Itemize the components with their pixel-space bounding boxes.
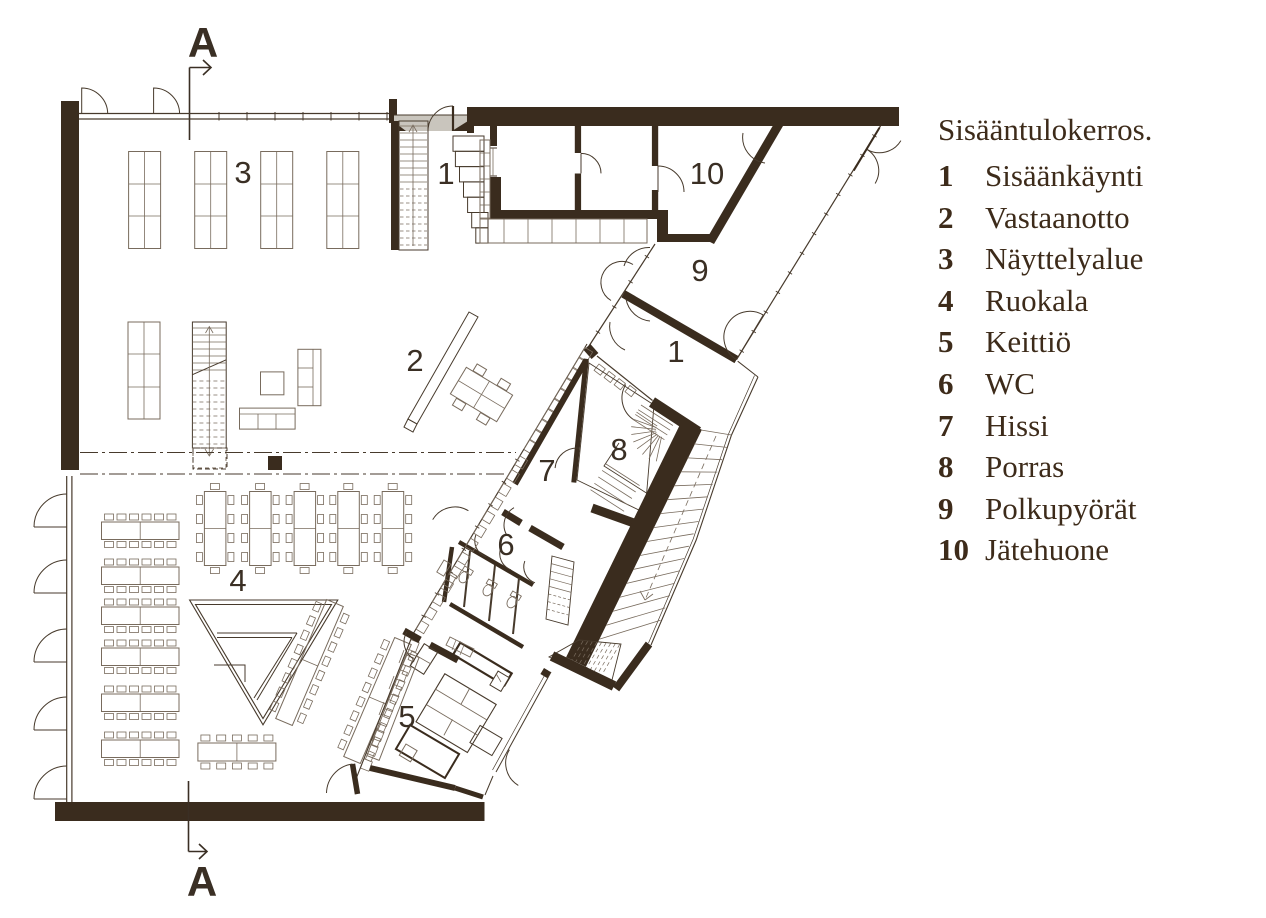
svg-text:Jätehuone: Jätehuone xyxy=(985,532,1109,567)
svg-text:Keittiö: Keittiö xyxy=(985,324,1071,359)
svg-text:4: 4 xyxy=(938,283,954,318)
svg-text:10: 10 xyxy=(938,532,969,567)
svg-text:7: 7 xyxy=(538,453,555,488)
svg-text:9: 9 xyxy=(938,491,954,526)
svg-text:Ruokala: Ruokala xyxy=(985,283,1089,318)
svg-text:3: 3 xyxy=(938,241,954,276)
svg-text:1: 1 xyxy=(437,156,454,191)
svg-text:Polkupyörät: Polkupyörät xyxy=(985,491,1137,526)
svg-text:A: A xyxy=(187,858,217,905)
svg-text:1: 1 xyxy=(667,334,684,369)
svg-text:4: 4 xyxy=(229,563,246,598)
svg-text:2: 2 xyxy=(938,200,954,235)
svg-text:5: 5 xyxy=(938,324,954,359)
svg-text:7: 7 xyxy=(938,408,954,443)
svg-text:Vastaanotto: Vastaanotto xyxy=(985,200,1130,235)
svg-text:6: 6 xyxy=(497,527,514,562)
svg-text:A: A xyxy=(188,19,218,66)
svg-text:Sisäänkäynti: Sisäänkäynti xyxy=(985,158,1144,193)
svg-text:6: 6 xyxy=(938,366,954,401)
svg-text:1: 1 xyxy=(938,158,954,193)
svg-text:WC: WC xyxy=(985,366,1035,401)
svg-text:3: 3 xyxy=(234,155,251,190)
svg-text:8: 8 xyxy=(938,449,954,484)
svg-text:10: 10 xyxy=(690,156,724,191)
svg-text:2: 2 xyxy=(406,343,423,378)
svg-text:Porras: Porras xyxy=(985,449,1064,484)
svg-text:Sisääntulokerros.: Sisääntulokerros. xyxy=(938,112,1152,147)
svg-text:9: 9 xyxy=(691,253,708,288)
svg-text:Hissi: Hissi xyxy=(985,408,1049,443)
svg-text:Näyttelyalue: Näyttelyalue xyxy=(985,241,1143,276)
svg-text:8: 8 xyxy=(610,432,627,467)
svg-text:5: 5 xyxy=(398,699,415,734)
